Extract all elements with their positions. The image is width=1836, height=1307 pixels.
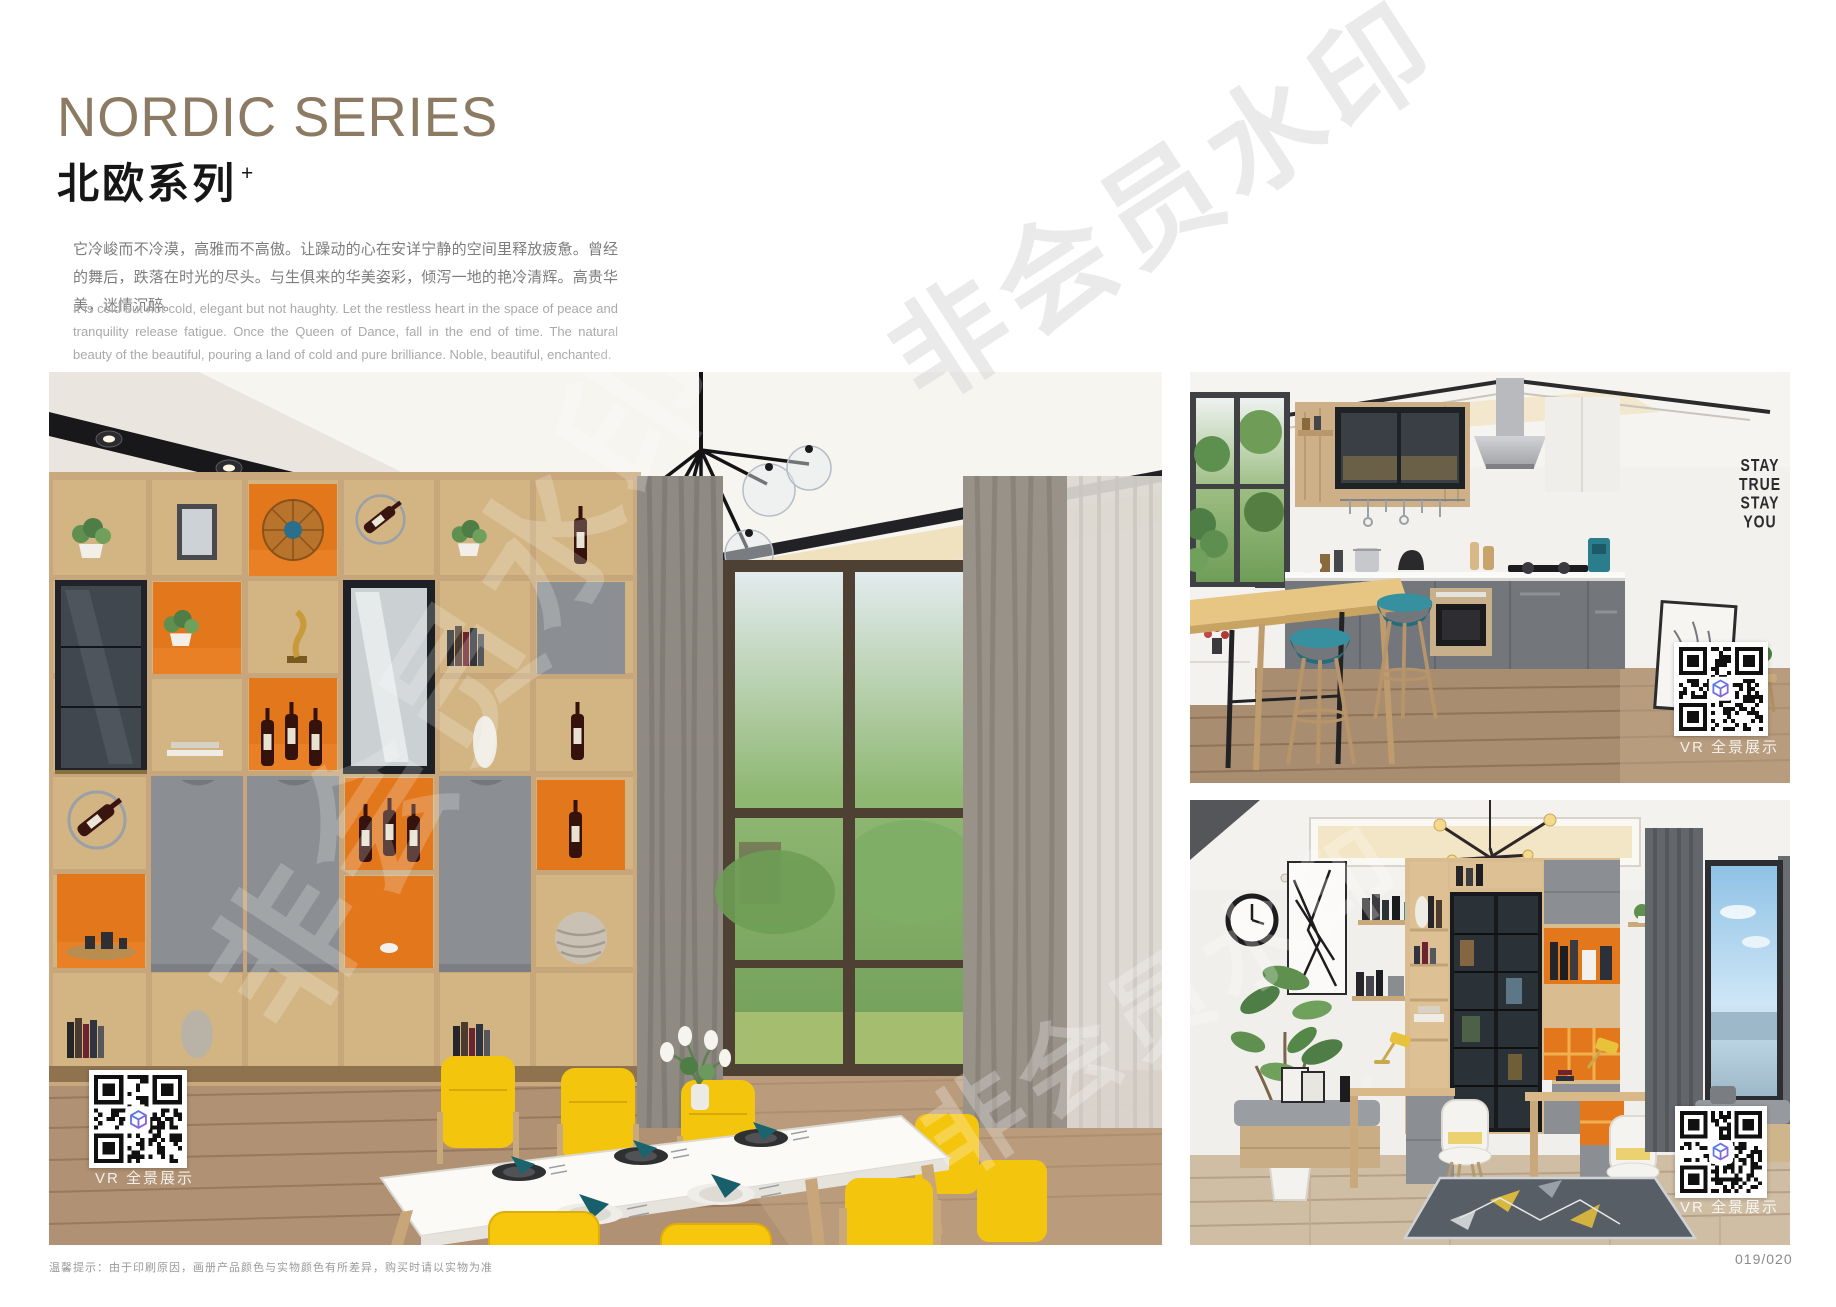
watermark-top: 非会员水印 [853,0,1468,435]
vr-qr-code-kitchen [1674,642,1768,736]
title-plus-mark: + [241,162,256,185]
vr-panorama-label: VR 全景展示 [1680,736,1779,757]
vr-qr-code-dining [89,1070,187,1168]
picture-frame [177,504,217,560]
title-chinese-text: 北欧系列 [57,160,237,207]
footer-disclaimer: 温馨提示：由于印刷原因，画册产品颜色与实物颜色有所差异，购买时请以实物为准 [49,1259,493,1275]
countertop [1285,572,1625,581]
page-title-english: NORDIC SERIES [57,84,498,149]
sheer-curtain [1067,476,1162,1128]
decorative-fan-plate [263,500,323,560]
striped-jar [555,912,607,964]
page-number: 019/020 [1735,1251,1793,1267]
qr-center-logo-cube [1709,677,1733,701]
photo-kitchen: STAY TRUE STAY YOU VR 全景展示 [1190,372,1790,783]
vr-qr-code-study [1675,1106,1767,1198]
qr-center-logo-cube [1709,1140,1733,1164]
vr-panorama-label: VR 全景展示 [1680,1196,1779,1217]
garden-window [715,560,981,1076]
glass-display-cabinet-right [343,580,435,774]
white-sculpture [473,716,497,768]
sea-view-window [1705,860,1783,1102]
built-in-oven [1430,588,1492,656]
glass-display-cabinet-left [55,580,147,774]
geometric-rug [1405,1178,1695,1238]
wall-shelving-unit [49,476,637,1082]
page-title-chinese: 北欧系列+ [57,150,256,211]
curtain-right-panel [963,476,1067,1128]
wall-decal-text: STAY TRUE STAY YOU [1732,456,1788,531]
qr-center-logo-cube [125,1106,150,1131]
upper-cabinets [1295,402,1470,507]
photo-study-room: VR 全景展示 [1190,800,1790,1245]
description-english: It is cold but not cold, elegant but not… [73,297,618,366]
wall-clock [1228,896,1276,944]
photo-dining-room: VR 全景展示 [49,372,1162,1245]
dining-room-illustration [49,372,1162,1245]
vr-panorama-label: VR 全景展示 [95,1167,194,1188]
